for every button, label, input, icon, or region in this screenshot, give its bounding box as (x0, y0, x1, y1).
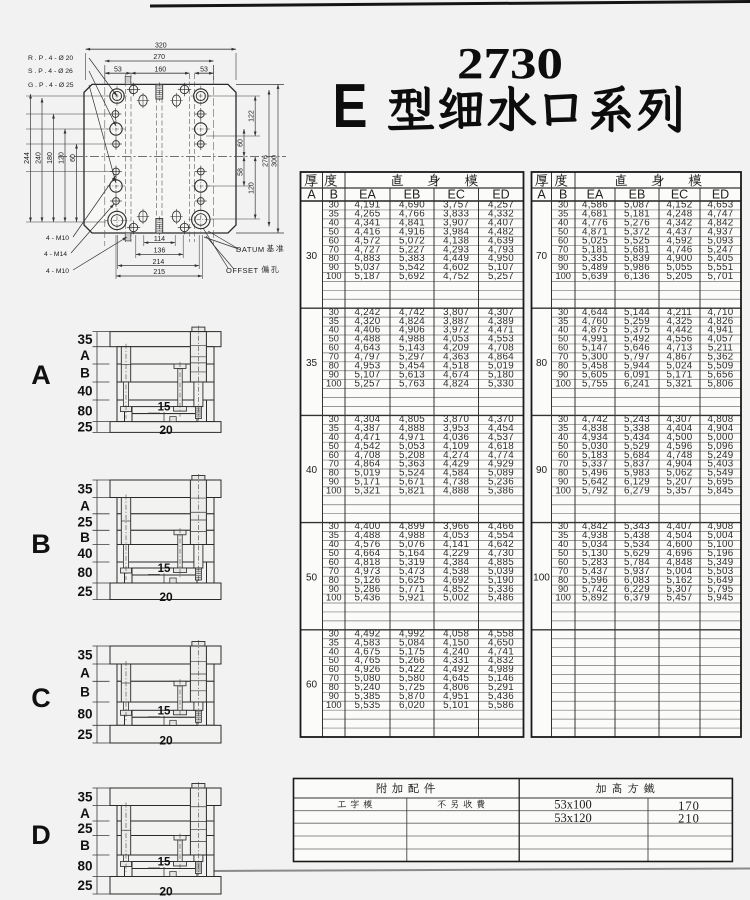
svg-text:80: 80 (77, 858, 92, 873)
svg-text:C: C (31, 683, 51, 713)
svg-text:E: E (333, 72, 368, 141)
svg-text:53: 53 (114, 66, 122, 73)
svg-text:53x100: 53x100 (554, 798, 592, 812)
svg-text:A: A (80, 498, 90, 513)
svg-text:35: 35 (77, 648, 93, 663)
svg-text:20: 20 (159, 885, 173, 899)
svg-text:90: 90 (536, 465, 548, 476)
svg-text:4 - M10: 4 - M10 (46, 268, 69, 275)
svg-text:180: 180 (47, 152, 54, 164)
svg-text:35: 35 (77, 789, 93, 804)
svg-text:35: 35 (306, 358, 318, 369)
svg-text:25: 25 (77, 515, 93, 530)
svg-text:A: A (537, 188, 546, 202)
svg-text:15: 15 (158, 402, 171, 414)
svg-text:100: 100 (533, 572, 550, 583)
svg-text:60: 60 (238, 139, 245, 147)
svg-text:276: 276 (263, 155, 270, 167)
svg-text:60: 60 (306, 680, 318, 691)
svg-text:320: 320 (155, 42, 167, 49)
svg-text:120: 120 (249, 182, 256, 194)
svg-text:244: 244 (24, 152, 31, 164)
svg-text:210: 210 (678, 812, 700, 826)
svg-text:B: B (80, 838, 90, 853)
svg-text:60: 60 (70, 154, 77, 162)
svg-text:2730: 2730 (457, 39, 563, 88)
svg-text:B: B (80, 366, 90, 381)
svg-text:25: 25 (77, 420, 93, 435)
svg-text:20: 20 (159, 423, 173, 437)
svg-text:B: B (31, 529, 51, 559)
svg-text:A: A (80, 665, 90, 680)
svg-text:D: D (31, 820, 51, 850)
svg-text:40: 40 (77, 384, 92, 399)
svg-text:120: 120 (59, 152, 66, 164)
svg-text:40: 40 (77, 546, 92, 561)
svg-text:58: 58 (238, 168, 245, 176)
svg-text:A: A (307, 188, 316, 202)
svg-text:R . P . 4 - Ø 20: R . P . 4 - Ø 20 (28, 55, 73, 62)
svg-text:4 - M14: 4 - M14 (44, 251, 67, 258)
svg-text:270: 270 (153, 54, 165, 61)
svg-text:80: 80 (536, 358, 548, 369)
svg-text:B: B (80, 530, 90, 545)
svg-text:70: 70 (536, 251, 548, 262)
svg-text:A: A (80, 348, 90, 363)
svg-text:25: 25 (77, 821, 93, 836)
svg-text:240: 240 (36, 152, 43, 164)
svg-text:114: 114 (154, 236, 165, 243)
svg-text:40: 40 (306, 465, 318, 476)
svg-text:25: 25 (77, 878, 93, 893)
svg-text:122: 122 (249, 110, 256, 122)
svg-text:A: A (80, 806, 90, 821)
svg-text:15: 15 (158, 705, 171, 717)
svg-text:B: B (80, 684, 90, 699)
svg-text:20: 20 (159, 590, 173, 604)
svg-text:DATUM: DATUM (236, 245, 265, 254)
svg-text:53: 53 (200, 66, 208, 73)
svg-text:15: 15 (158, 857, 171, 869)
svg-text:35: 35 (77, 481, 93, 496)
svg-text:A: A (31, 360, 51, 390)
svg-text:G . P . 4 - Ø 25: G . P . 4 - Ø 25 (28, 82, 74, 89)
svg-text:160: 160 (154, 66, 166, 73)
svg-text:15: 15 (158, 563, 171, 575)
svg-text:80: 80 (77, 565, 92, 580)
svg-text:80: 80 (77, 403, 92, 418)
svg-text:50: 50 (306, 572, 318, 583)
svg-text:20: 20 (159, 734, 173, 748)
svg-text:OFFSET: OFFSET (226, 266, 259, 275)
svg-text:25: 25 (77, 727, 93, 742)
svg-text:25: 25 (77, 584, 93, 599)
svg-text:S . P . 4 - Ø 26: S . P . 4 - Ø 26 (28, 68, 73, 75)
svg-text:80: 80 (77, 706, 92, 721)
svg-text:214: 214 (153, 259, 165, 266)
svg-text:30: 30 (306, 251, 318, 262)
svg-text:4 - M10: 4 - M10 (46, 235, 69, 242)
svg-text:136: 136 (154, 248, 166, 255)
svg-text:300: 300 (272, 155, 279, 167)
svg-text:35: 35 (77, 332, 93, 347)
svg-text:215: 215 (153, 269, 165, 276)
